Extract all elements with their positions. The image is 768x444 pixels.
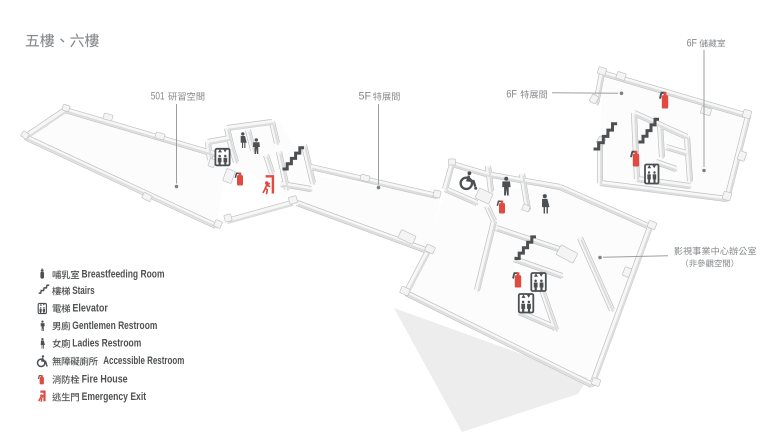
svg-text:Stairs: Stairs (72, 285, 95, 297)
svg-text:5F: 5F (359, 91, 372, 103)
svg-text:Gentlemen Restroom: Gentlemen Restroom (72, 320, 157, 332)
svg-text:Breastfeeding Room: Breastfeeding Room (82, 269, 165, 281)
svg-text:Ladies Restroom: Ladies Restroom (72, 337, 141, 349)
svg-text:501: 501 (151, 91, 165, 103)
svg-text:6F: 6F (506, 89, 517, 101)
svg-text:Emergency Exit: Emergency Exit (82, 391, 147, 403)
svg-text:Accessible Restroom: Accessible Restroom (103, 355, 184, 367)
svg-text:Fire House: Fire House (82, 373, 128, 385)
svg-text:Elevator: Elevator (72, 302, 108, 314)
svg-text:6F: 6F (687, 37, 698, 49)
